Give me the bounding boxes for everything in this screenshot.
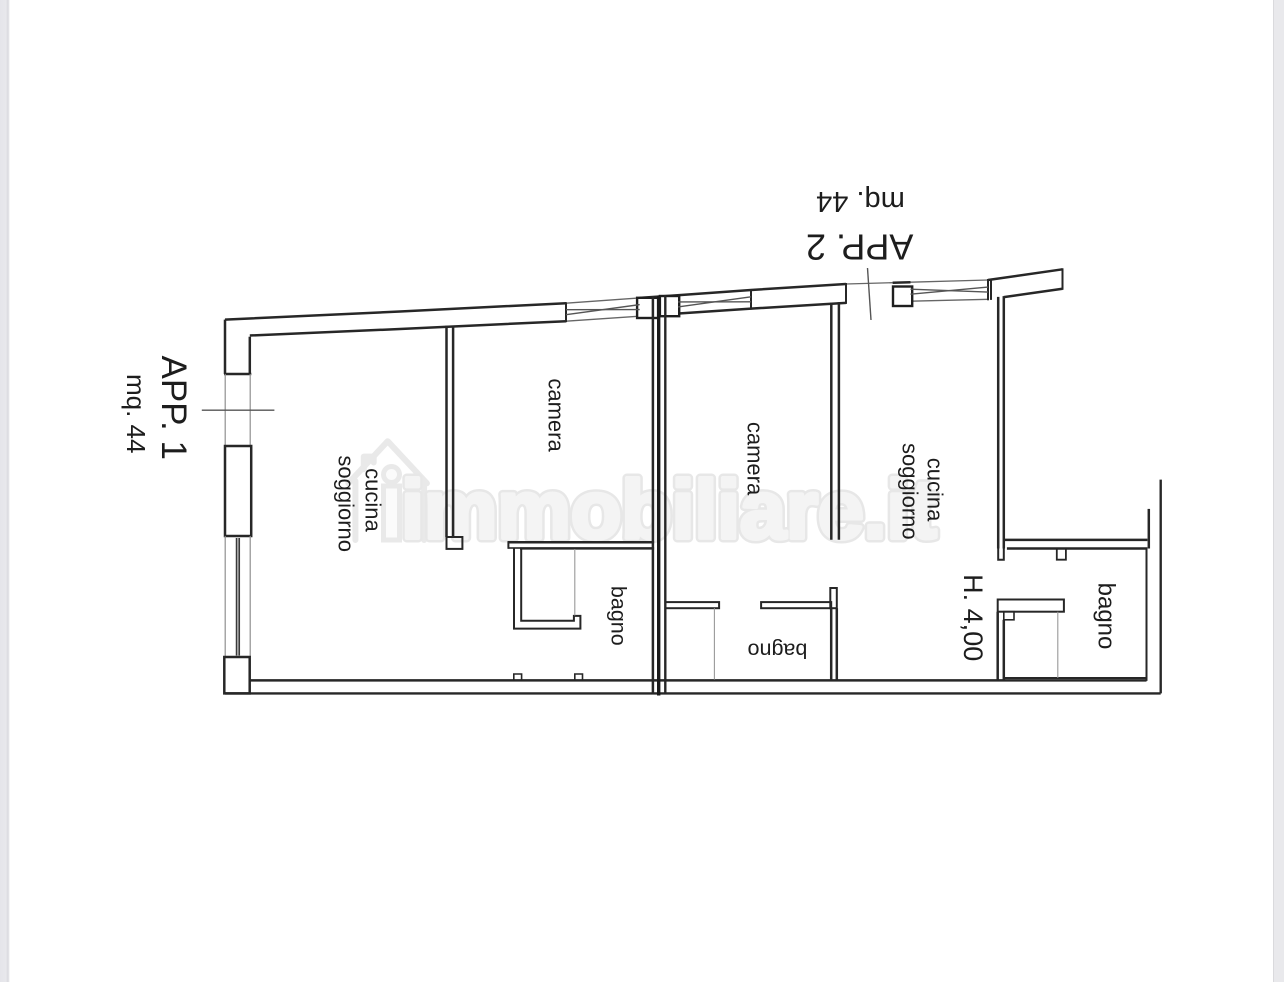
svg-text:immobiliare.it: immobiliare.it — [401, 463, 936, 556]
svg-text:bagno: bagno — [748, 639, 808, 663]
svg-text:mq. 44: mq. 44 — [816, 185, 905, 217]
svg-text:bagno: bagno — [607, 586, 631, 646]
svg-text:APP. 2: APP. 2 — [806, 226, 913, 267]
svg-text:cucina: cucina — [923, 458, 948, 522]
svg-text:H. 4,00: H. 4,00 — [958, 574, 988, 661]
svg-text:cucina: cucina — [361, 468, 386, 532]
svg-text:bagno: bagno — [1093, 583, 1120, 650]
svg-text:mq. 44: mq. 44 — [121, 374, 151, 454]
svg-text:APP. 1: APP. 1 — [154, 355, 193, 459]
svg-text:camera: camera — [743, 422, 768, 496]
svg-text:camera: camera — [543, 378, 568, 452]
svg-text:soggiorno: soggiorno — [333, 455, 358, 552]
svg-text:soggiorno: soggiorno — [898, 443, 923, 540]
